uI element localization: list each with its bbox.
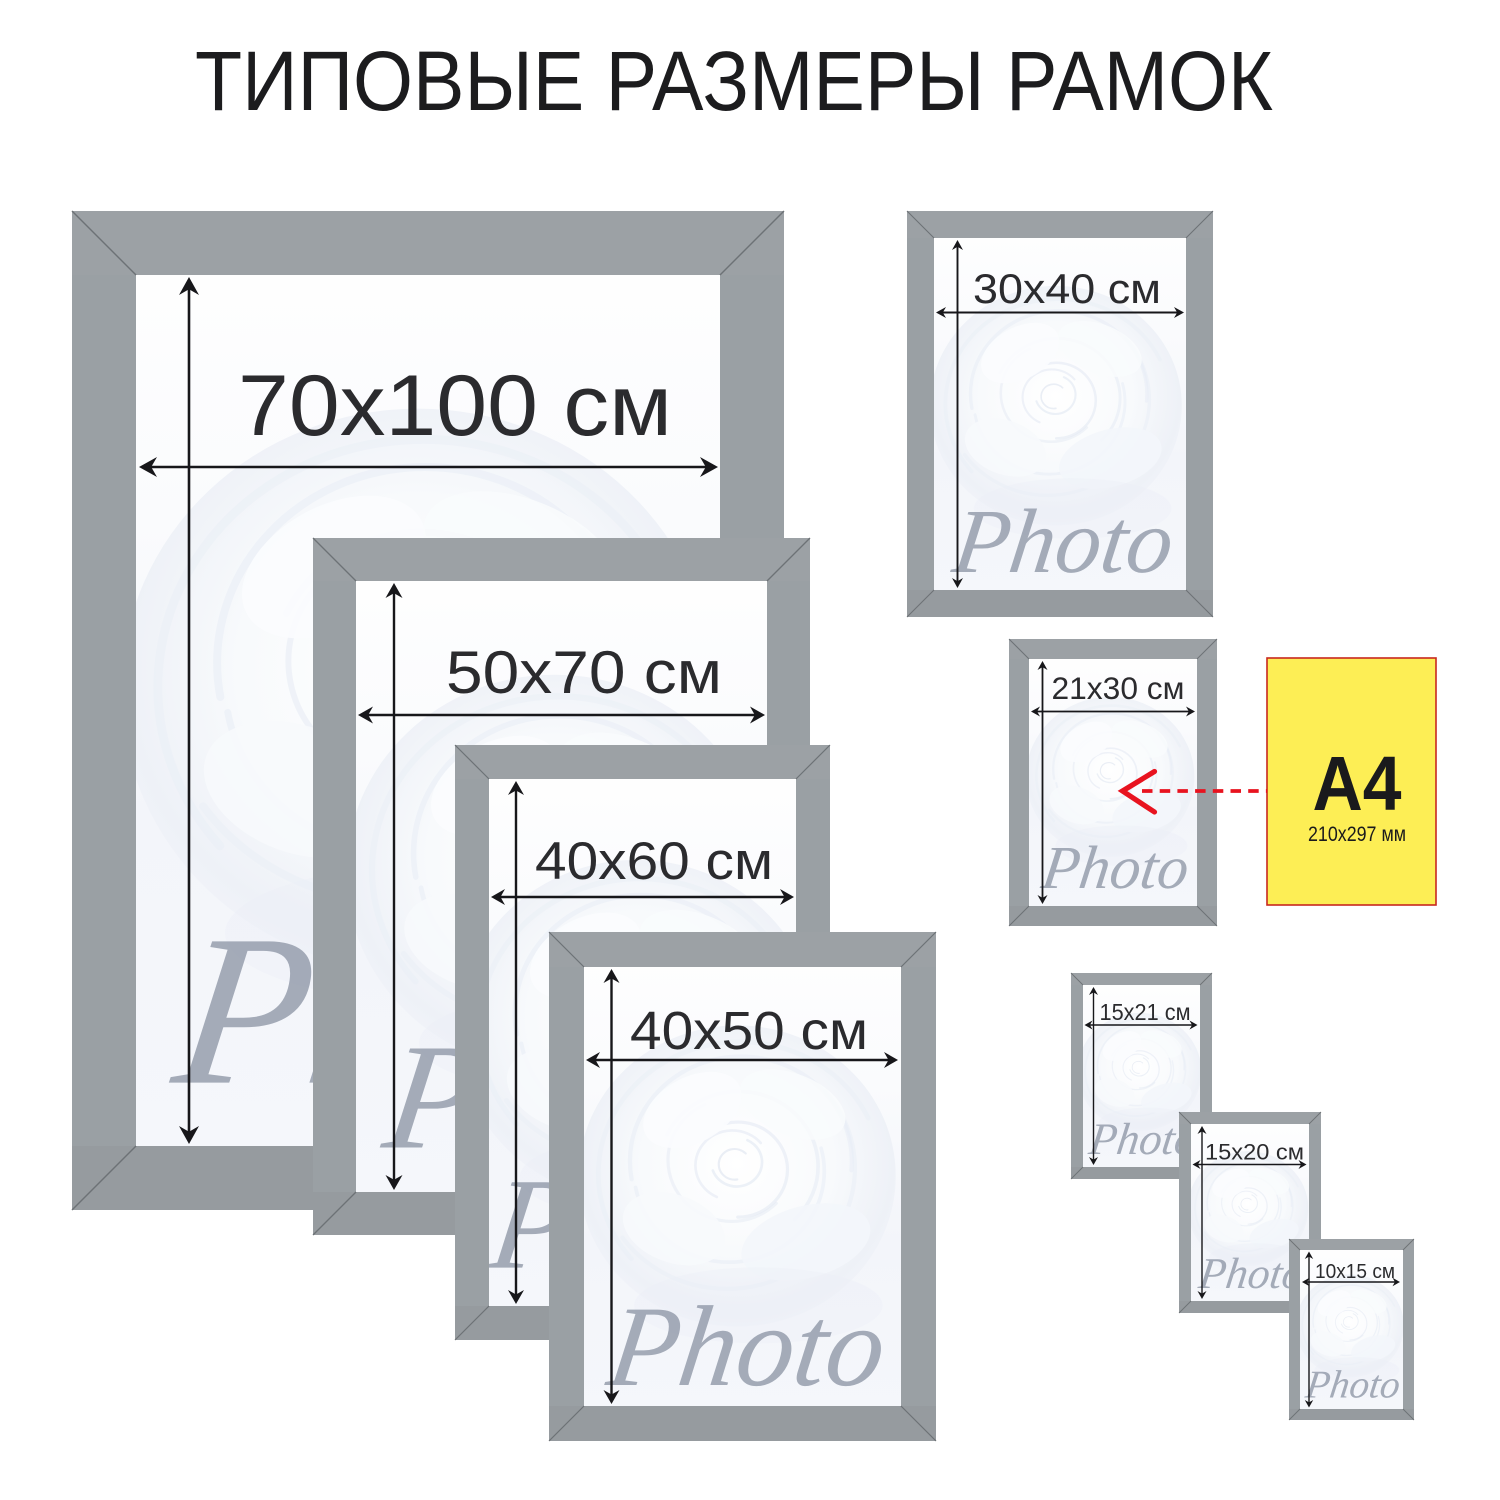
svg-text:15x20 см: 15x20 см: [1205, 1140, 1304, 1165]
svg-text:50x70 см: 50x70 см: [446, 639, 722, 706]
svg-text:21x30 см: 21x30 см: [1052, 670, 1185, 706]
svg-text:15x21 см: 15x21 см: [1100, 999, 1191, 1025]
svg-text:70x100 см: 70x100 см: [238, 358, 672, 454]
svg-text:30x40 см: 30x40 см: [973, 265, 1161, 312]
svg-text:10x15 см: 10x15 см: [1315, 1261, 1395, 1283]
svg-text:210х297 мм: 210х297 мм: [1308, 823, 1406, 846]
svg-text:40x60 см: 40x60 см: [535, 832, 773, 891]
svg-text:ТИПОВЫЕ РАЗМЕРЫ РАМОК: ТИПОВЫЕ РАЗМЕРЫ РАМОК: [195, 34, 1273, 128]
svg-text:40x50 см: 40x50 см: [630, 1001, 868, 1061]
svg-text:А4: А4: [1313, 741, 1402, 827]
